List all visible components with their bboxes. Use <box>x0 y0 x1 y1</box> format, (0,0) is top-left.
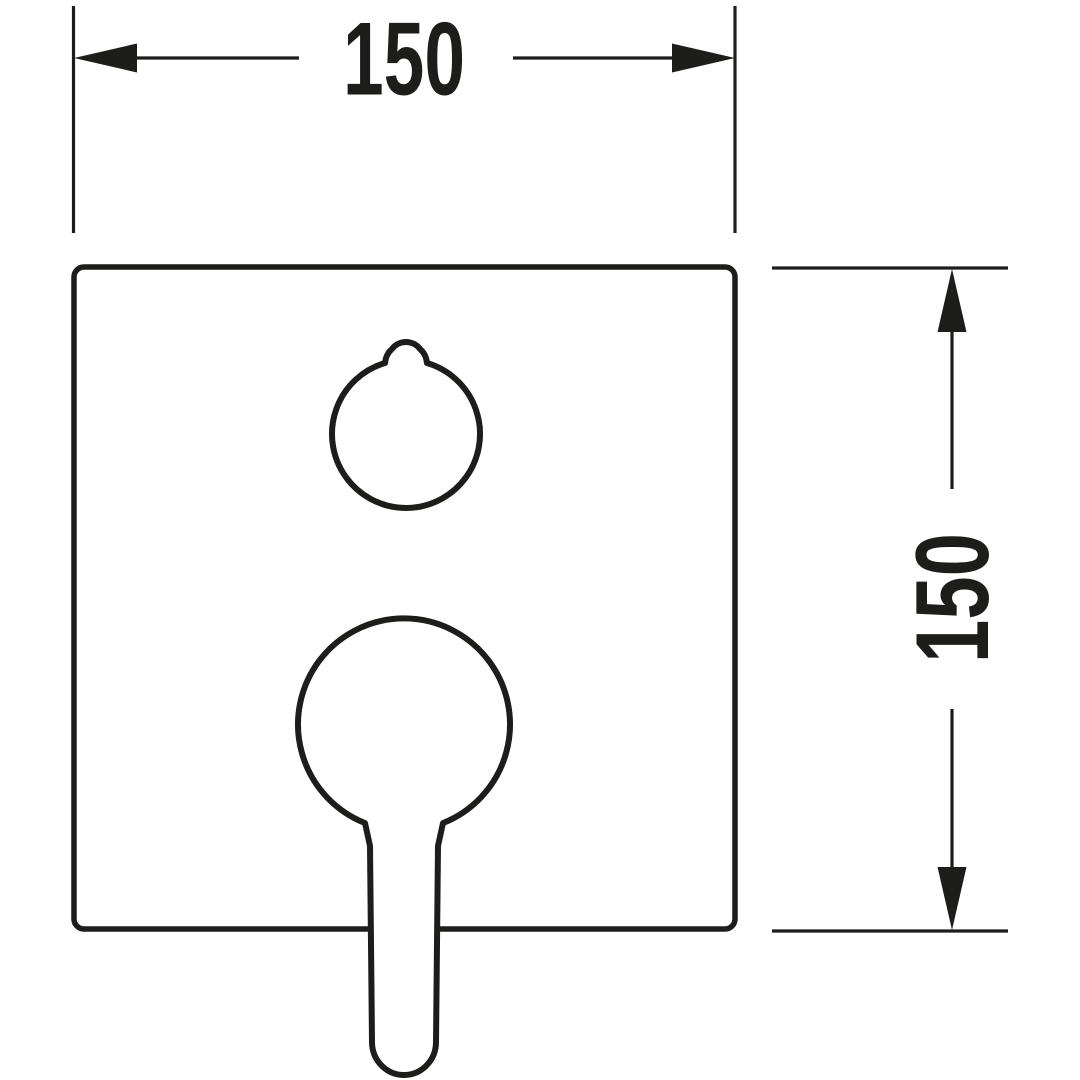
top-dimension: 150 <box>74 2 736 234</box>
right-arrowhead-icon <box>672 44 735 73</box>
technical-drawing: 150 150 <box>0 0 1080 1080</box>
left-arrowhead-icon <box>74 44 137 73</box>
technical-drawing-canvas: 150 150 <box>0 0 1080 1080</box>
right-dimension: 150 <box>772 268 1011 931</box>
right-dimension-label: 150 <box>895 533 1011 663</box>
down-arrowhead-icon <box>938 867 967 930</box>
top-dimension-label: 150 <box>343 2 465 118</box>
up-arrowhead-icon <box>938 269 967 332</box>
